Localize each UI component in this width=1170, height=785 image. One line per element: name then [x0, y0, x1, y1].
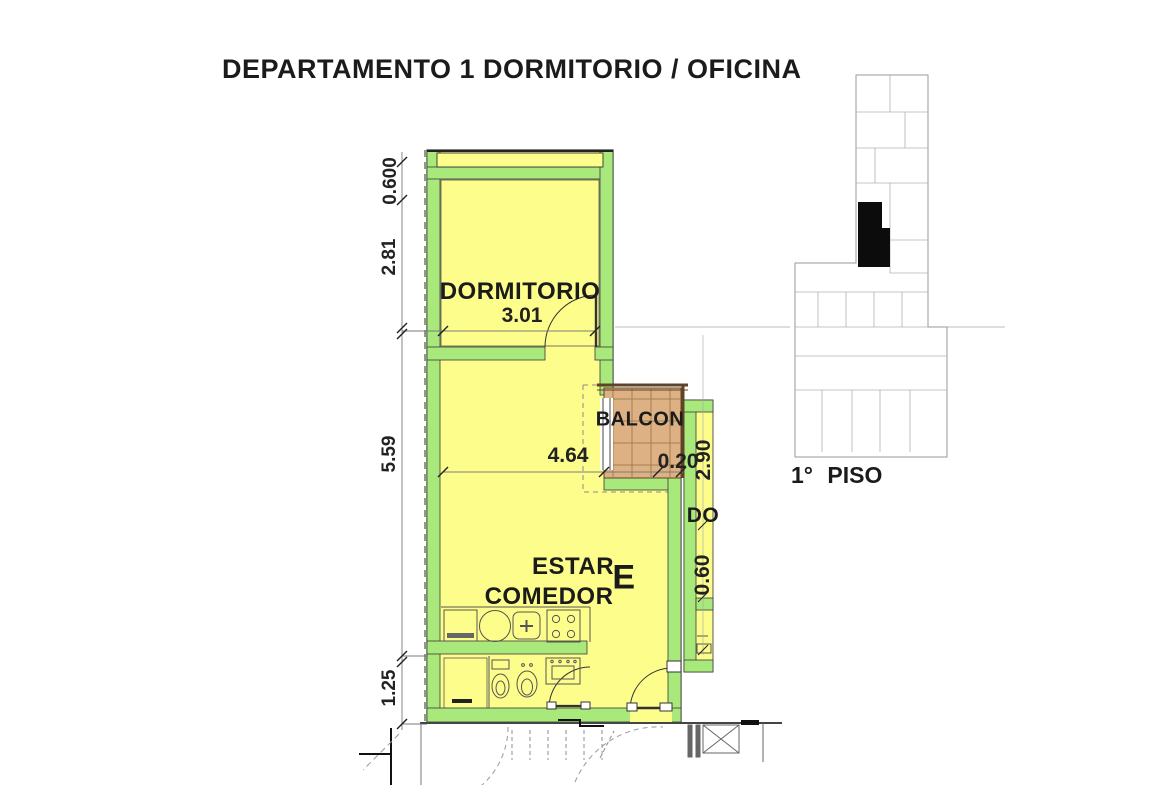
- room-letter-e: E: [612, 559, 635, 598]
- hallway-stairs: [359, 720, 782, 785]
- room-label-dormitorio: DORMITORIO: [440, 278, 601, 306]
- room-label-estar: ESTAR: [532, 553, 614, 581]
- keyplan-map: [795, 75, 947, 457]
- dim-dormitorio-width: 3.01: [502, 304, 543, 328]
- dim-left-559: 5.59: [379, 436, 401, 473]
- stair-treads: [512, 730, 614, 760]
- dim-left-0600: 0.600: [380, 157, 402, 205]
- dim-estar-width: 4.64: [548, 444, 589, 468]
- elevator-shaft: [688, 720, 763, 762]
- page-title: DEPARTAMENTO 1 DORMITORIO / OFICINA: [222, 54, 802, 85]
- floor-plan-drawing: [0, 0, 1170, 785]
- keyplan-floor-label: 1° PISO: [791, 462, 882, 489]
- floor-plan-page: DEPARTAMENTO 1 DORMITORIO / OFICINA DORM…: [0, 0, 1170, 785]
- dim-adjacent-passage: 0.60: [691, 555, 715, 596]
- room-label-adjacent-cut: DO: [687, 504, 720, 528]
- room-label-balcon: BALCON: [596, 409, 685, 432]
- dim-left-125: 1.25: [379, 670, 401, 707]
- top-terrace: [427, 151, 613, 167]
- dim-adjacent-height: 2.90: [692, 440, 716, 481]
- dim-left-281: 2.81: [379, 239, 401, 276]
- room-label-comedor: COMEDOR: [485, 583, 614, 611]
